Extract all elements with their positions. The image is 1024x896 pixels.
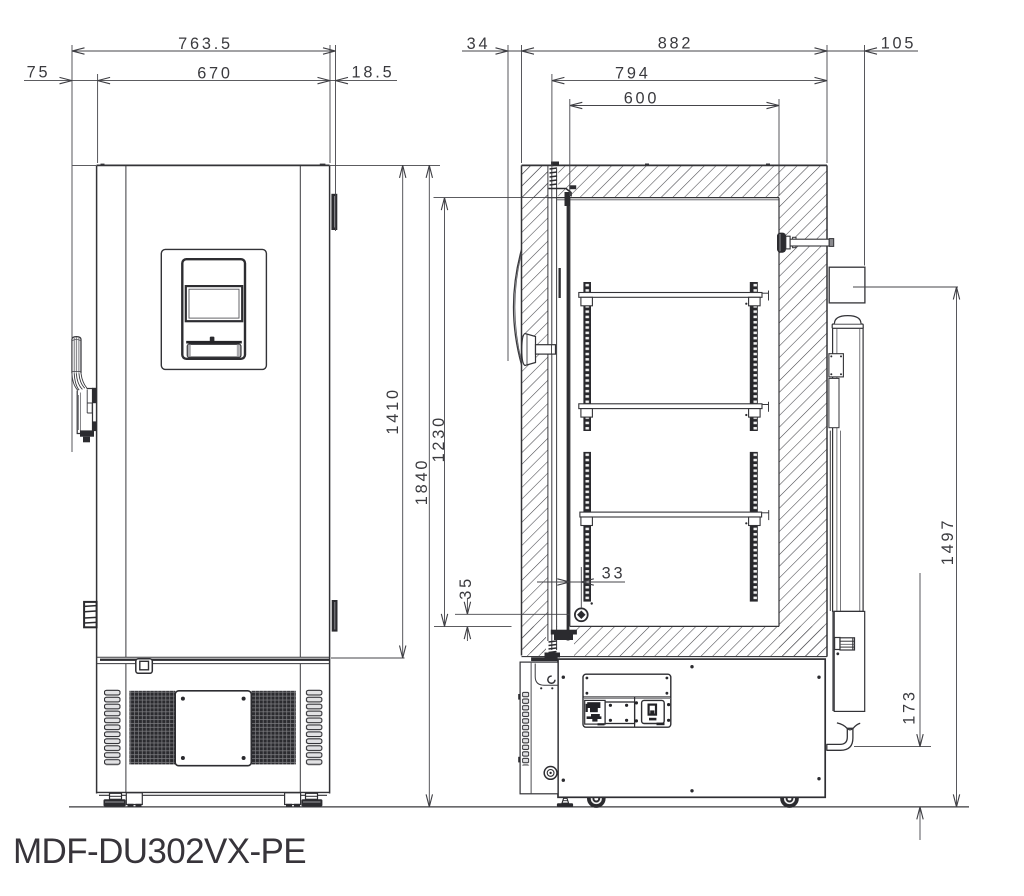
svg-text:1497: 1497 bbox=[939, 518, 957, 565]
svg-text:1230: 1230 bbox=[430, 415, 448, 462]
svg-text:600: 600 bbox=[624, 90, 660, 108]
svg-text:105: 105 bbox=[881, 35, 917, 53]
svg-text:173: 173 bbox=[901, 689, 919, 725]
svg-text:35: 35 bbox=[457, 576, 475, 600]
svg-text:33: 33 bbox=[602, 565, 626, 583]
svg-text:882: 882 bbox=[658, 35, 694, 53]
svg-text:34: 34 bbox=[467, 35, 491, 53]
svg-text:794: 794 bbox=[615, 64, 651, 82]
svg-text:75: 75 bbox=[27, 64, 51, 82]
svg-text:670: 670 bbox=[197, 65, 233, 83]
svg-text:1840: 1840 bbox=[413, 458, 431, 505]
svg-text:1410: 1410 bbox=[384, 387, 402, 434]
svg-text:763.5: 763.5 bbox=[178, 35, 233, 53]
svg-text:MDF-DU302VX-PE: MDF-DU302VX-PE bbox=[13, 832, 306, 871]
svg-text:18.5: 18.5 bbox=[352, 64, 395, 82]
